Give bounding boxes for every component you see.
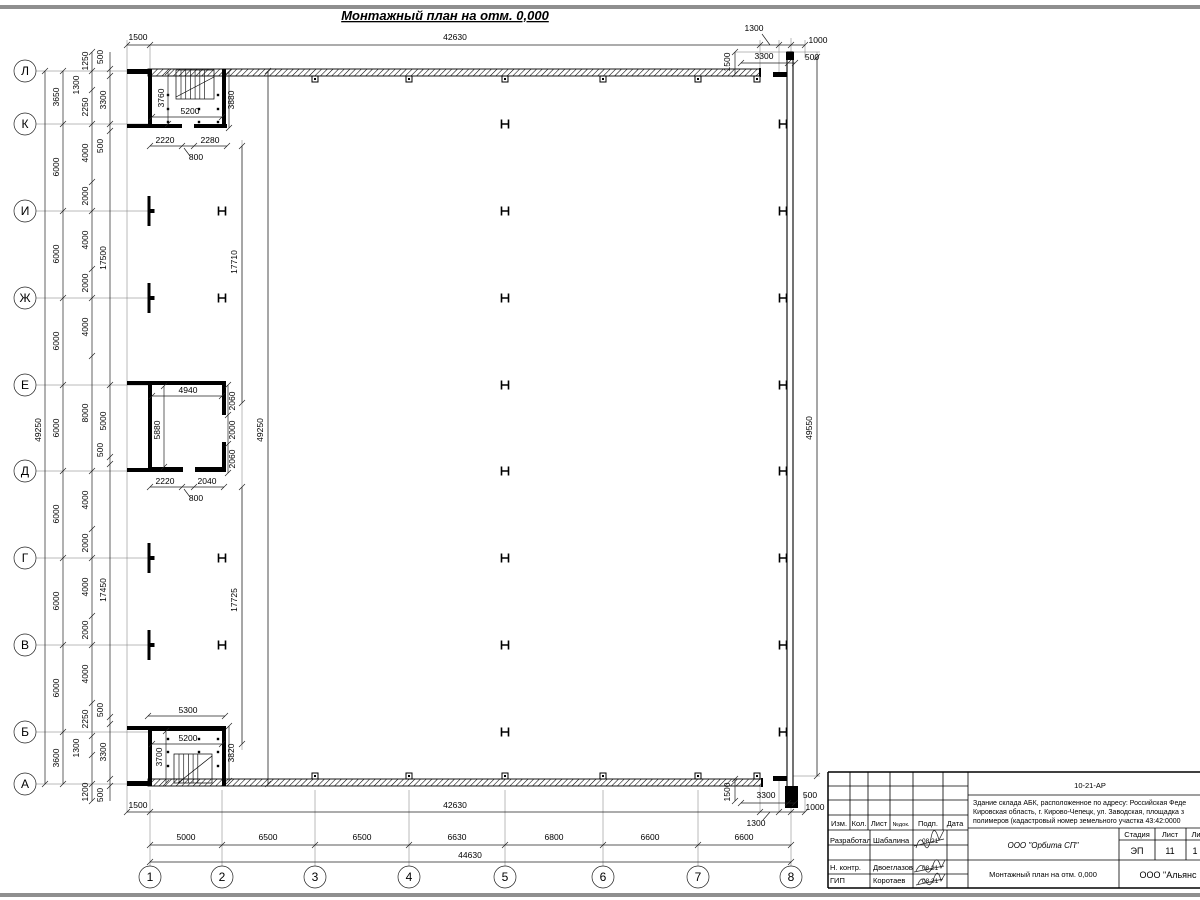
dim-label: 49250 bbox=[255, 418, 265, 442]
dim-label: 5000 bbox=[98, 411, 108, 430]
dim-label: 3700 bbox=[154, 747, 164, 766]
dim-label: 6000 bbox=[51, 504, 61, 523]
tb-role: Разработал bbox=[830, 836, 871, 845]
dim-label: 500 bbox=[95, 443, 105, 457]
bottom-wall bbox=[148, 779, 762, 786]
drawing-sheet: Монтажный план на отм. 0,000 bbox=[0, 0, 1200, 900]
axis-bubble-label: Е bbox=[21, 378, 29, 392]
dim-label: 1500 bbox=[722, 782, 732, 801]
tb-sheets-value: 1 bbox=[1192, 846, 1197, 856]
wall-pier bbox=[149, 283, 155, 313]
wall-pier bbox=[149, 630, 155, 660]
dim-label: 4000 bbox=[80, 490, 90, 509]
doc-number: 10-21-АР bbox=[1074, 781, 1106, 790]
dim-label: 3650 bbox=[51, 87, 61, 106]
axis-bubble-label: Л bbox=[21, 64, 29, 78]
dim-label: 3300 bbox=[98, 90, 108, 109]
dim-label: 42630 bbox=[443, 32, 467, 42]
dim-label: 6500 bbox=[353, 832, 372, 842]
dim-label: 3300 bbox=[98, 742, 108, 761]
dim-label: 6600 bbox=[641, 832, 660, 842]
tb-stage-label: Стадия bbox=[1124, 830, 1150, 839]
axis-bubble-label: 1 bbox=[147, 870, 154, 884]
tb-role: Н. контр. bbox=[830, 863, 861, 872]
axis-bubble-label: 2 bbox=[219, 870, 226, 884]
dim-label: 6000 bbox=[51, 244, 61, 263]
grid-extension-lines bbox=[36, 38, 820, 866]
tb-header-kol: Кол. bbox=[852, 819, 867, 828]
dim-label: 2250 bbox=[80, 709, 90, 728]
project-description-line: Кировская область, г. Кирово-Чепецк, ул.… bbox=[973, 808, 1184, 816]
dim-label: 6000 bbox=[51, 418, 61, 437]
axis-bubble-label: И bbox=[21, 204, 30, 218]
page-bottom-edge bbox=[0, 893, 1200, 897]
dim-label: 1300 bbox=[71, 738, 81, 757]
dim-label: 6000 bbox=[51, 678, 61, 697]
dim-label: 3820 bbox=[226, 743, 236, 762]
tb-name: Двоеглазов bbox=[873, 863, 913, 872]
dim-label: 5200 bbox=[181, 106, 200, 116]
dim-label: 3600 bbox=[51, 748, 61, 767]
axis-bubble-label: К bbox=[22, 117, 29, 131]
axis-bubble-label: Г bbox=[22, 551, 29, 565]
wall-pier bbox=[149, 196, 155, 226]
axis-bubble-label: А bbox=[21, 777, 29, 791]
tb-org: ООО "Орбита СП" bbox=[1007, 841, 1079, 850]
page-title: Монтажный план на отм. 0,000 bbox=[341, 8, 549, 23]
dim-label: 3760 bbox=[156, 88, 166, 107]
axis-bubble-label: 5 bbox=[502, 870, 509, 884]
tb-company: ООО "Альянс bbox=[1140, 870, 1197, 880]
dimension-lines bbox=[42, 34, 820, 865]
dim-label: 500 bbox=[95, 50, 105, 64]
dim-label: 1000 bbox=[809, 35, 828, 45]
tb-sheets-label: Ли bbox=[1191, 830, 1200, 839]
dim-label: 4000 bbox=[80, 664, 90, 683]
dim-label: 6000 bbox=[51, 591, 61, 610]
dim-label: 2220 bbox=[156, 135, 175, 145]
dim-label: 4940 bbox=[179, 385, 198, 395]
right-wall bbox=[787, 52, 793, 801]
dim-label: 6800 bbox=[545, 832, 564, 842]
tb-name: Шабалина bbox=[873, 836, 910, 845]
dim-label: 6000 bbox=[51, 157, 61, 176]
dim-label: 1200 bbox=[80, 782, 90, 801]
axis-bubbles-bottom: 1 2 3 4 5 6 7 8 bbox=[139, 866, 802, 888]
dim-label: 5300 bbox=[179, 705, 198, 715]
axis-bubble-label: 7 bbox=[695, 870, 702, 884]
dim-label: 2250 bbox=[80, 97, 90, 116]
tb-header-podp: Подп. bbox=[918, 819, 938, 828]
tb-header-list: Лист bbox=[871, 819, 888, 828]
dim-label: 1000 bbox=[806, 802, 825, 812]
dim-label: 1250 bbox=[80, 51, 90, 70]
dim-label: 2000 bbox=[80, 273, 90, 292]
dim-label: 1300 bbox=[745, 23, 764, 33]
wall-column-markers bbox=[312, 76, 760, 779]
axis-bubble-label: 8 bbox=[788, 870, 795, 884]
tb-header-ndok: №док. bbox=[893, 822, 910, 828]
dim-label: 500 bbox=[95, 703, 105, 717]
dim-label: 2060 bbox=[227, 449, 237, 468]
dim-label: 5880 bbox=[152, 420, 162, 439]
dim-label: 2220 bbox=[156, 476, 175, 486]
dim-label: 4000 bbox=[80, 577, 90, 596]
dim-label: 49550 bbox=[804, 416, 814, 440]
tb-name: Коротаев bbox=[873, 876, 905, 885]
dim-label: 2060 bbox=[227, 391, 237, 410]
dim-label: 2280 bbox=[201, 135, 220, 145]
dim-label: 6630 bbox=[448, 832, 467, 842]
dim-label: 8000 bbox=[80, 403, 90, 422]
title-block: 10-21-АР Здание склада АБК, расположенно… bbox=[828, 772, 1200, 888]
top-wall bbox=[148, 69, 760, 76]
dim-label: 500 bbox=[805, 52, 819, 62]
axis-bubble-label: Д bbox=[21, 464, 29, 478]
dim-label: 6000 bbox=[51, 331, 61, 350]
axis-bubble-label: Б bbox=[21, 725, 29, 739]
dim-label: 2040 bbox=[198, 476, 217, 486]
dim-label: 2000 bbox=[80, 620, 90, 639]
dim-label: 3880 bbox=[226, 90, 236, 109]
dim-label: 1300 bbox=[747, 818, 766, 828]
tb-header-izm: Изм. bbox=[831, 819, 847, 828]
dim-label: 2000 bbox=[227, 420, 237, 439]
dim-label: 17710 bbox=[229, 250, 239, 274]
dim-label: 500 bbox=[803, 790, 817, 800]
tb-header-data: Дата bbox=[947, 819, 964, 828]
dim-label: 4000 bbox=[80, 143, 90, 162]
right-wall-corner-column bbox=[785, 786, 798, 808]
dim-label: 1500 bbox=[129, 32, 148, 42]
axis-bubble-label: 4 bbox=[406, 870, 413, 884]
tb-stage-value: ЭП bbox=[1131, 846, 1144, 856]
dim-label: 800 bbox=[189, 493, 203, 503]
dim-label: 4000 bbox=[80, 317, 90, 336]
dim-label: 1300 bbox=[71, 75, 81, 94]
axis-bubble-label: 3 bbox=[312, 870, 319, 884]
page-top-edge bbox=[0, 5, 1200, 9]
dim-label: 17725 bbox=[229, 588, 239, 612]
dimension-labels: 1500 42630 1300 1000 1500 3300 500 1500 … bbox=[33, 23, 828, 860]
dim-label: 2000 bbox=[80, 533, 90, 552]
left-wall-stubs bbox=[127, 69, 148, 786]
dim-label: 800 bbox=[189, 152, 203, 162]
axis-bubble-label: 6 bbox=[600, 870, 607, 884]
tb-drawing-title: Монтажный план на отм. 0,000 bbox=[989, 870, 1097, 879]
axis-bubble-label: В bbox=[21, 638, 29, 652]
dim-label: 500 bbox=[95, 788, 105, 802]
dim-label: 3300 bbox=[757, 790, 776, 800]
dim-label: 44630 bbox=[458, 850, 482, 860]
dim-label: 5000 bbox=[177, 832, 196, 842]
dim-label: 5200 bbox=[179, 733, 198, 743]
dim-label: 500 bbox=[95, 139, 105, 153]
project-description-line: Здание склада АБК, расположенное по адре… bbox=[973, 799, 1186, 807]
dim-label: 1500 bbox=[722, 52, 732, 71]
dim-label: 49250 bbox=[33, 418, 43, 442]
dim-label: 6600 bbox=[735, 832, 754, 842]
dim-label: 1500 bbox=[129, 800, 148, 810]
dim-label: 4000 bbox=[80, 230, 90, 249]
tb-role: ГИП bbox=[830, 876, 845, 885]
plan-canvas: Монтажный план на отм. 0,000 bbox=[0, 0, 1200, 900]
dim-label: 17450 bbox=[98, 578, 108, 602]
dim-label: 6500 bbox=[259, 832, 278, 842]
tb-sheet-value: 11 bbox=[1165, 846, 1174, 856]
dim-label: 3300 bbox=[755, 51, 774, 61]
dim-label: 2000 bbox=[80, 186, 90, 205]
project-description-line: полимеров (кадастровый номер земельного … bbox=[973, 817, 1181, 825]
dim-label: 42630 bbox=[443, 800, 467, 810]
dim-label: 17500 bbox=[98, 246, 108, 270]
steel-columns bbox=[219, 120, 787, 737]
wall-pier bbox=[149, 543, 155, 573]
tb-sheet-label: Лист bbox=[1162, 830, 1179, 839]
axis-bubble-label: Ж bbox=[19, 291, 30, 305]
